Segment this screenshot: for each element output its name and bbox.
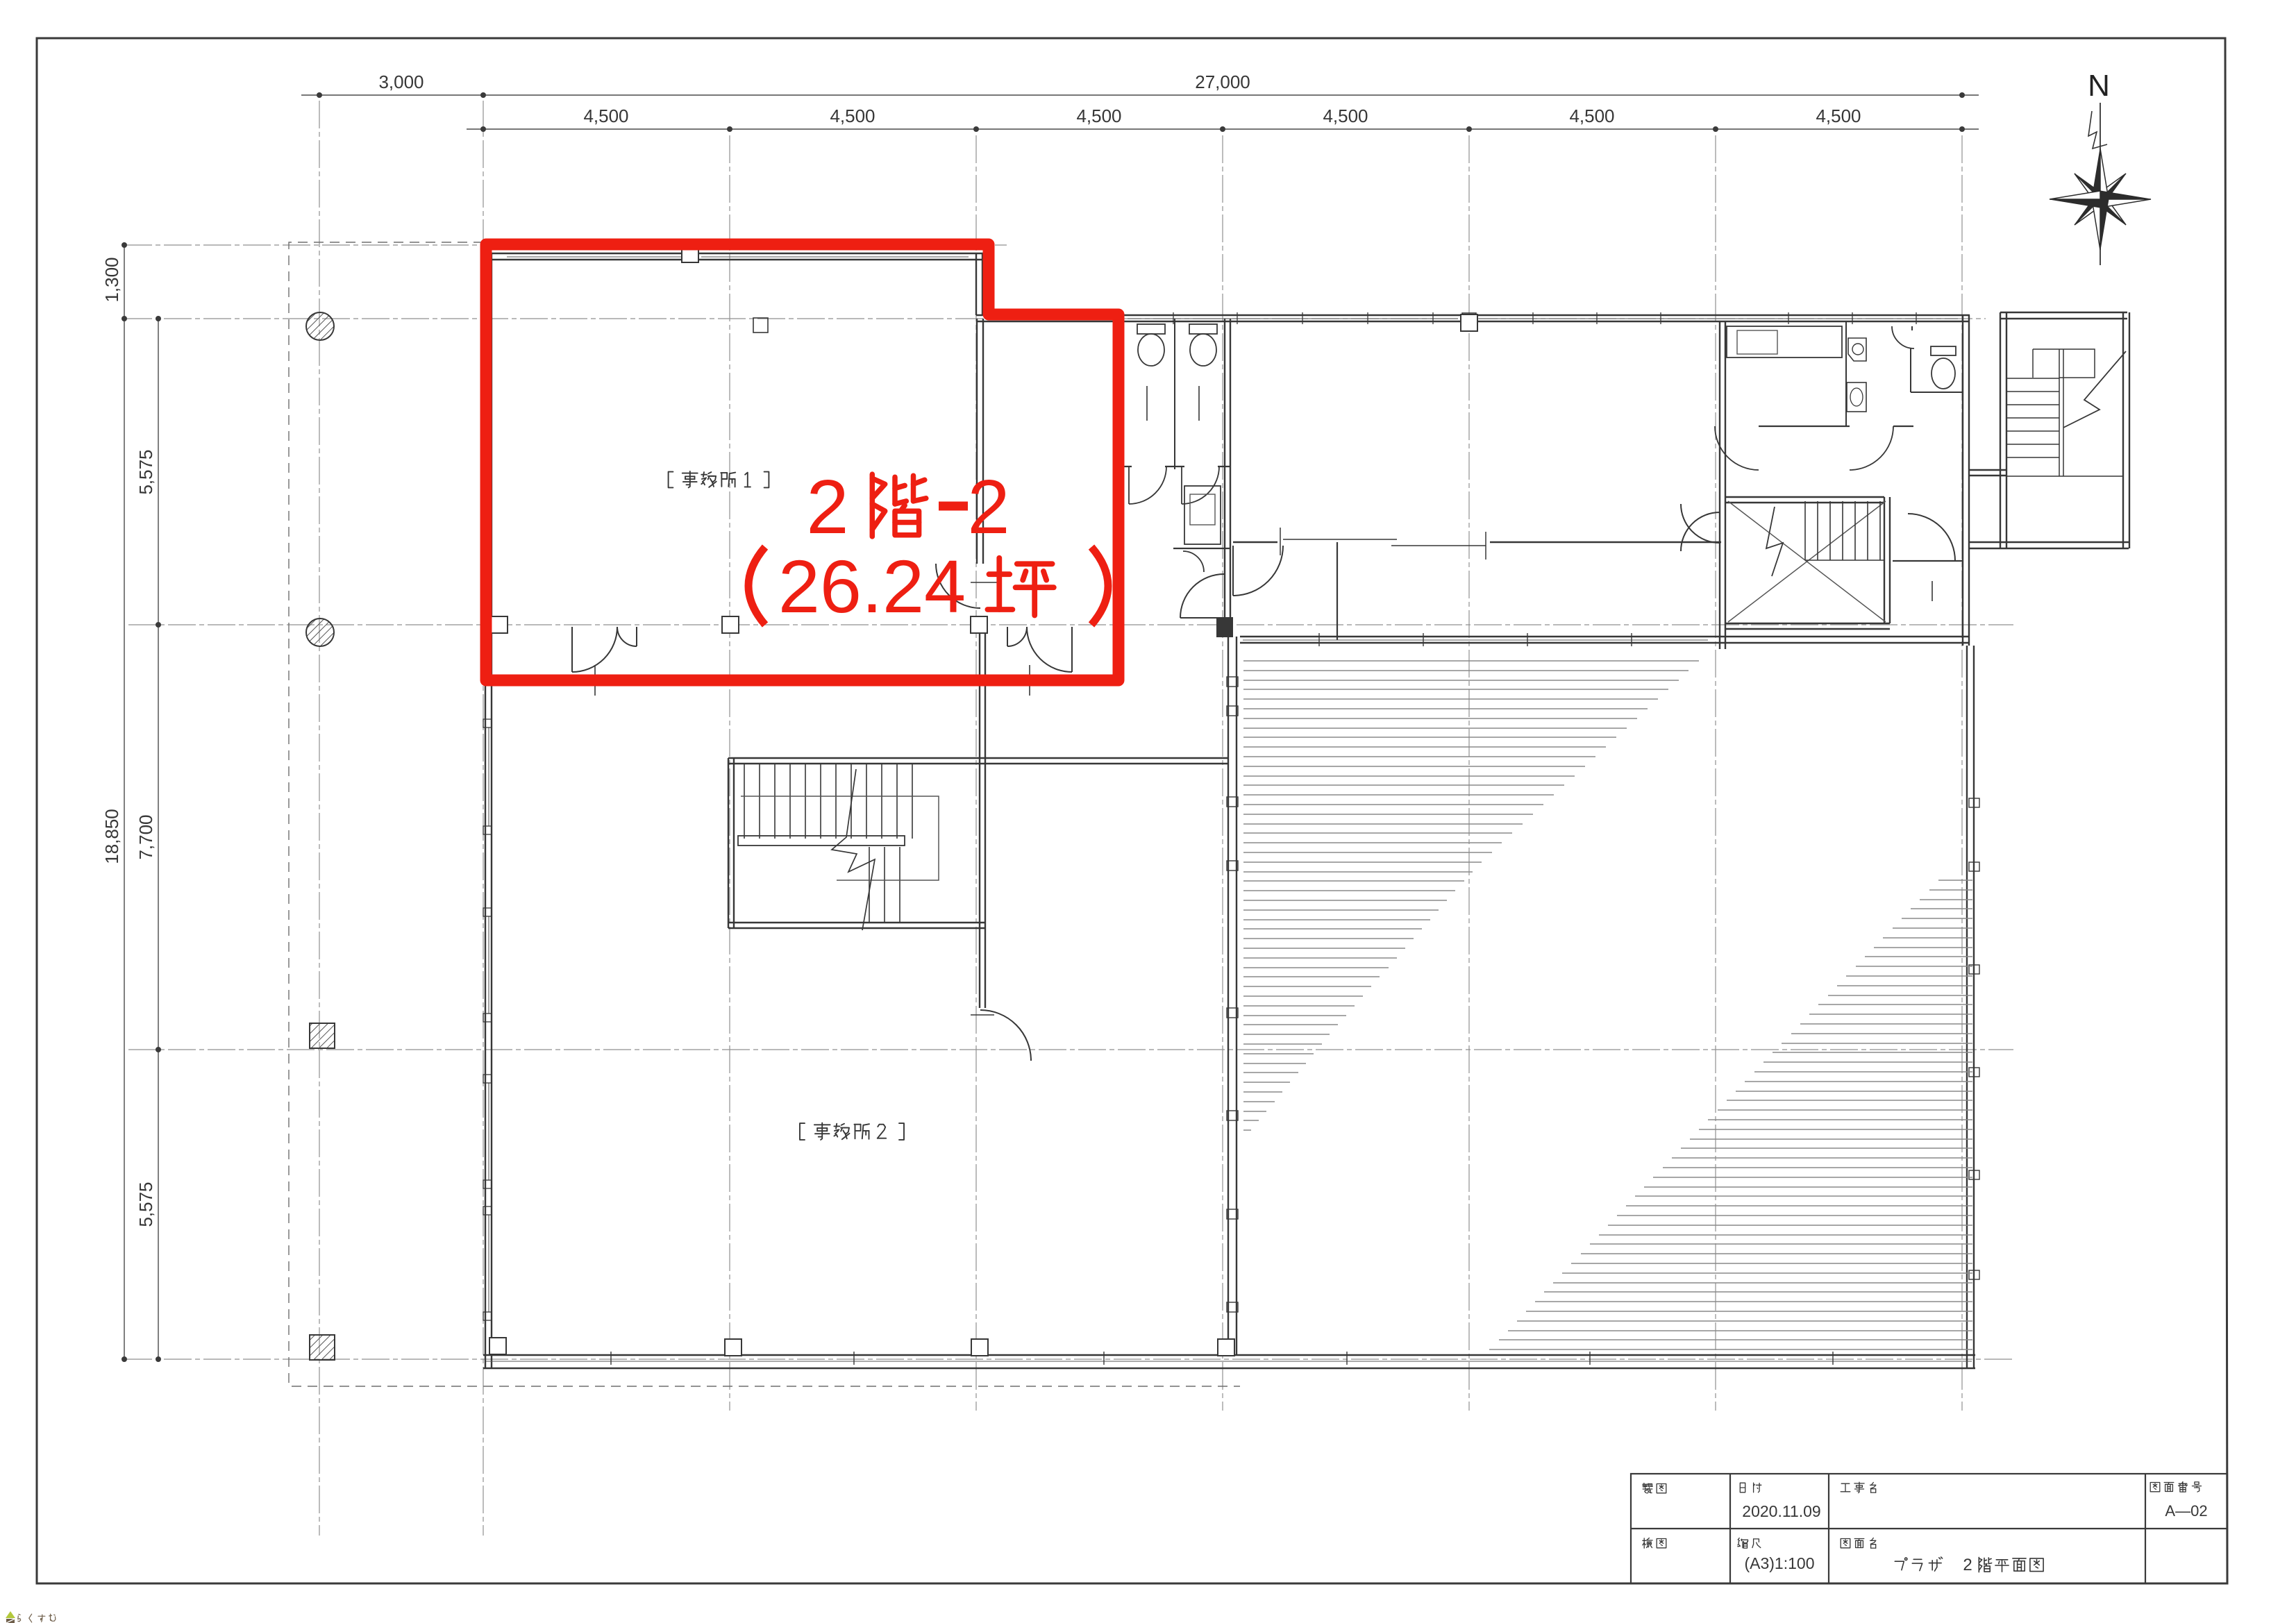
- svg-text:5,575: 5,575: [135, 449, 156, 494]
- svg-text:2: 2: [806, 464, 848, 550]
- svg-text:(A3)1:100: (A3)1:100: [1744, 1554, 1814, 1572]
- svg-text:4,500: 4,500: [830, 106, 875, 126]
- svg-text:4,500: 4,500: [1323, 106, 1368, 126]
- svg-text:2: 2: [967, 464, 1009, 550]
- svg-text:4,500: 4,500: [1569, 106, 1614, 126]
- svg-text:3,000: 3,000: [378, 72, 424, 92]
- svg-text:27,000: 27,000: [1195, 72, 1250, 92]
- svg-text:7,700: 7,700: [135, 814, 156, 859]
- svg-text:4,500: 4,500: [1816, 106, 1861, 126]
- svg-text:5,575: 5,575: [135, 1181, 156, 1227]
- svg-text:1,300: 1,300: [101, 257, 122, 302]
- svg-text:18,850: 18,850: [101, 809, 122, 864]
- svg-text:2: 2: [1963, 1556, 1972, 1574]
- svg-text:4,500: 4,500: [1076, 106, 1121, 126]
- svg-text:2020.11.09: 2020.11.09: [1742, 1502, 1820, 1520]
- svg-text:A—02: A—02: [2165, 1502, 2207, 1520]
- svg-text:26.24: 26.24: [778, 544, 966, 628]
- svg-text:4,500: 4,500: [583, 106, 628, 126]
- svg-text:N: N: [2088, 69, 2110, 103]
